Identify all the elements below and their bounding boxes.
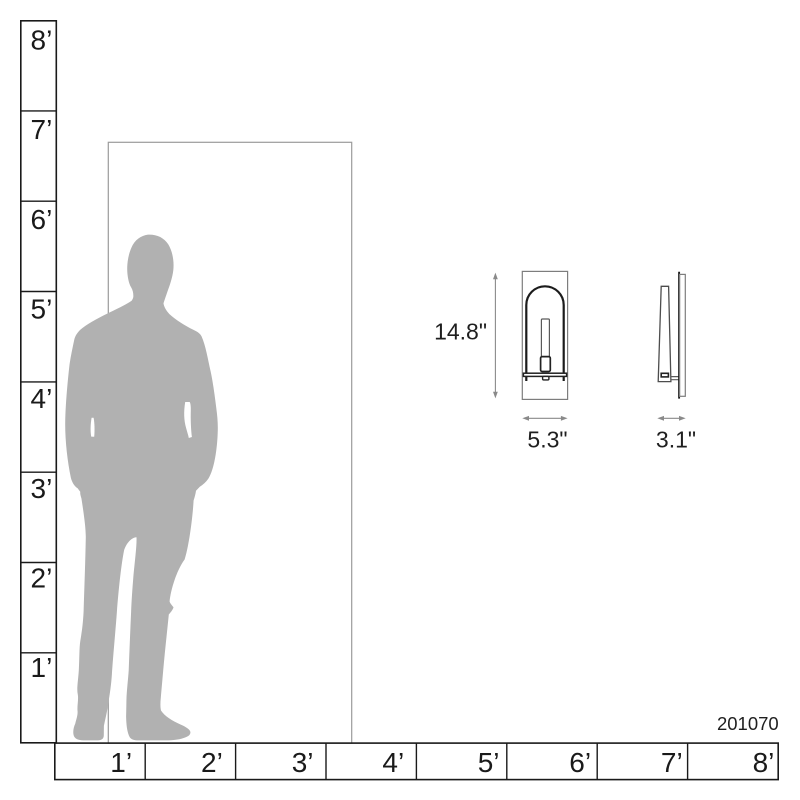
svg-text:8’: 8’: [31, 25, 53, 56]
svg-text:1’: 1’: [31, 652, 53, 683]
svg-text:6’: 6’: [569, 747, 591, 778]
svg-text:201070: 201070: [717, 713, 779, 734]
svg-text:8’: 8’: [753, 747, 775, 778]
svg-text:7’: 7’: [31, 114, 53, 145]
svg-text:1’: 1’: [110, 747, 132, 778]
svg-text:3.1": 3.1": [656, 427, 696, 453]
svg-text:3’: 3’: [31, 473, 53, 504]
svg-text:2’: 2’: [31, 562, 53, 593]
svg-text:5’: 5’: [31, 294, 53, 325]
svg-text:4’: 4’: [31, 383, 53, 414]
svg-text:3’: 3’: [292, 747, 314, 778]
svg-text:5’: 5’: [478, 747, 500, 778]
svg-text:6’: 6’: [31, 204, 53, 235]
svg-text:2’: 2’: [201, 747, 223, 778]
svg-text:7’: 7’: [661, 747, 683, 778]
svg-text:5.3": 5.3": [527, 427, 567, 453]
svg-text:14.8": 14.8": [434, 319, 487, 345]
svg-text:4’: 4’: [382, 747, 404, 778]
